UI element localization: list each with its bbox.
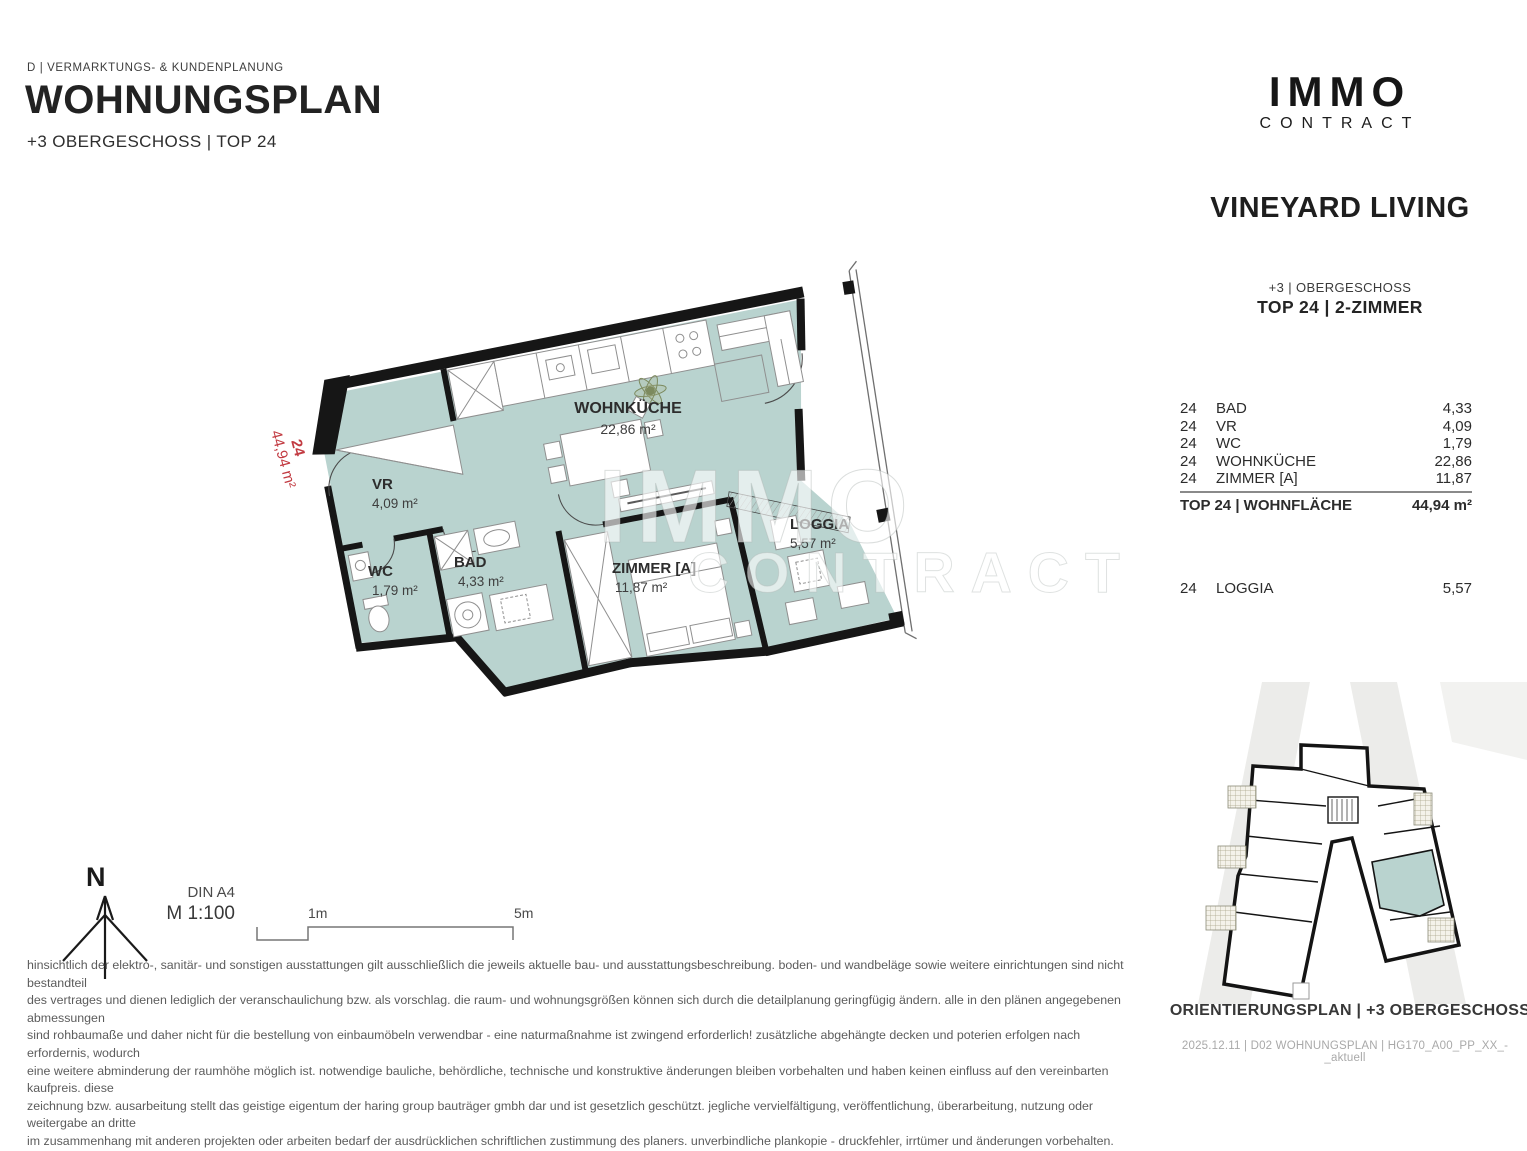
room-label: WOHNKÜCHE [574, 398, 682, 417]
row-room-name: WC [1216, 435, 1402, 453]
brand-logo-contract: CONTRACT [1160, 115, 1520, 133]
disclaimer-line: eine weitere abminderung der raumhöhe mö… [27, 1063, 1127, 1098]
row-room-name: LOGGIA [1216, 580, 1402, 598]
detached-structure [1293, 983, 1309, 999]
row-unit-no: 24 [1180, 435, 1216, 453]
adjacent-block [1440, 682, 1527, 760]
row-unit-no: 24 [1180, 580, 1216, 598]
disclaimer-line: des vertrages und dienen lediglich der v… [27, 992, 1127, 1027]
table-row: 24 ZIMMER [A] 11,87 [1180, 470, 1472, 488]
room-label: VR [372, 476, 393, 493]
disclaimer-line: hinsichtlich der elektro-, sanitär- und … [27, 957, 1127, 992]
page-subtitle: +3 OBERGESCHOSS | TOP 24 [27, 132, 277, 152]
row-room-name: BAD [1216, 400, 1402, 418]
format-scale-block: DIN A4 M 1:100 [120, 884, 235, 925]
orientation-map [1185, 682, 1527, 1004]
room-area: 22,86 m² [600, 421, 656, 437]
table-row: 24 WC 1,79 [1180, 435, 1472, 453]
table-total-row: TOP 24 | WOHNFLÄCHE 44,94 m² [1180, 491, 1472, 515]
scale-mark-5m: 5m [514, 905, 533, 921]
room-area: 1,79 m² [372, 583, 418, 598]
row-room-area: 4,33 [1402, 400, 1472, 418]
disclaimer-line: sind rohbaumaße und daher nicht für die … [27, 1027, 1127, 1062]
watermark-contract: CONTRACT [688, 540, 1136, 606]
page-title: WOHNUNGSPLAN [25, 78, 382, 123]
row-unit-no: 24 [1180, 400, 1216, 418]
facade-post [842, 280, 855, 295]
department-line: D | VERMARKTUNGS- & KUNDENPLANUNG [27, 62, 284, 74]
unit-title: TOP 24 | 2-ZIMMER [1160, 297, 1520, 318]
row-room-name: ZIMMER [A] [1216, 470, 1402, 488]
room-area-table: 24 BAD 4,33 24 VR 4,09 24 WC 1,79 24 WOH… [1180, 400, 1472, 598]
scale-bar: 1m 5m [250, 897, 550, 947]
stair-core [1328, 797, 1358, 823]
disclaimer-line: im zusammenhang mit anderen projekten od… [27, 1133, 1127, 1151]
highlighted-unit [1372, 850, 1444, 916]
room-area: 11,87 m² [615, 580, 668, 595]
row-unit-no: 24 [1180, 418, 1216, 436]
north-letter: N [86, 862, 106, 893]
row-unit-no: 24 [1180, 453, 1216, 471]
row-room-area: 22,86 [1402, 453, 1472, 471]
file-info-line: 2025.12.11 | D02 WOHNUNGSPLAN | HG170_A0… [1165, 1040, 1525, 1064]
row-room-area: 4,09 [1402, 418, 1472, 436]
unit-floor: +3 | OBERGESCHOSS [1160, 280, 1520, 295]
room-area: 4,33 m² [458, 574, 504, 589]
drawing-scale: M 1:100 [120, 903, 235, 925]
room-label: WC [368, 563, 393, 580]
room-area: 4,09 m² [372, 496, 418, 511]
table-row: 24 WOHNKÜCHE 22,86 [1180, 453, 1472, 471]
brand-logo-immo: IMMO [1160, 68, 1520, 116]
row-room-name: VR [1216, 418, 1402, 436]
orientation-map-caption: ORIENTIERUNGSPLAN | +3 OBERGESCHOSS [1165, 1002, 1527, 1020]
total-value: 44,94 m² [1382, 497, 1472, 515]
room-label: BAD [454, 554, 487, 571]
table-row: 24 VR 4,09 [1180, 418, 1472, 436]
total-label: TOP 24 | WOHNFLÄCHE [1180, 497, 1382, 515]
disclaimer-text: hinsichtlich der elektro-, sanitär- und … [27, 957, 1127, 1151]
paper-format: DIN A4 [120, 884, 235, 901]
table-row: 24 BAD 4,33 [1180, 400, 1472, 418]
row-room-area: 1,79 [1402, 435, 1472, 453]
disclaimer-line: zeichnung bzw. ausarbeitung stellt das g… [27, 1098, 1127, 1133]
row-room-area: 11,87 [1402, 470, 1472, 488]
project-name: VINEYARD LIVING [1160, 192, 1520, 225]
scale-mark-1m: 1m [308, 905, 327, 921]
row-room-area: 5,57 [1402, 580, 1472, 598]
row-room-name: WOHNKÜCHE [1216, 453, 1402, 471]
row-unit-no: 24 [1180, 470, 1216, 488]
table-row-loggia: 24 LOGGIA 5,57 [1180, 580, 1472, 598]
